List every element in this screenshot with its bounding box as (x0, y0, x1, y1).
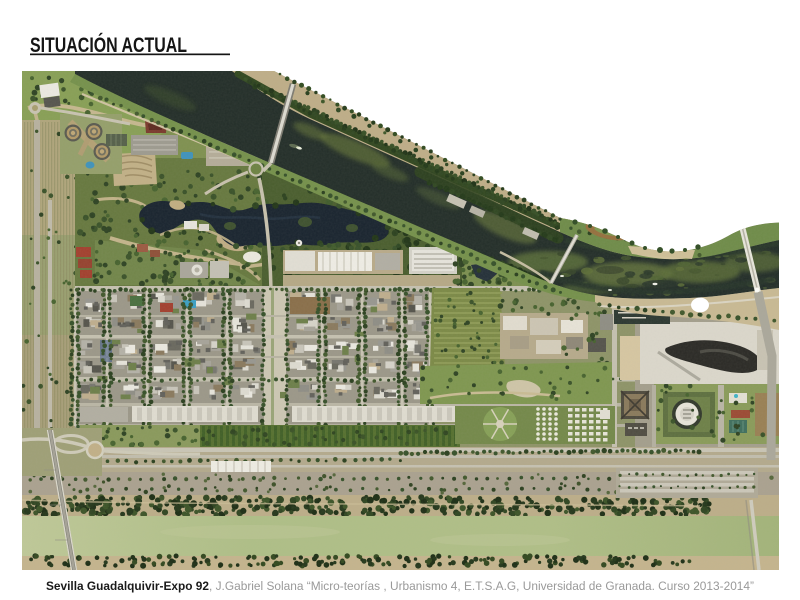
svg-text:, J.Gabriel Solana “Micro-teo: , J.Gabriel Solana “Micro-teorías , Urba… (209, 579, 754, 593)
svg-text:Sevilla Guadalquivir-Expo 92: Sevilla Guadalquivir-Expo 92 (46, 579, 209, 593)
svg-text:SITUACIÓN ACTUAL: SITUACIÓN ACTUAL (30, 33, 187, 57)
